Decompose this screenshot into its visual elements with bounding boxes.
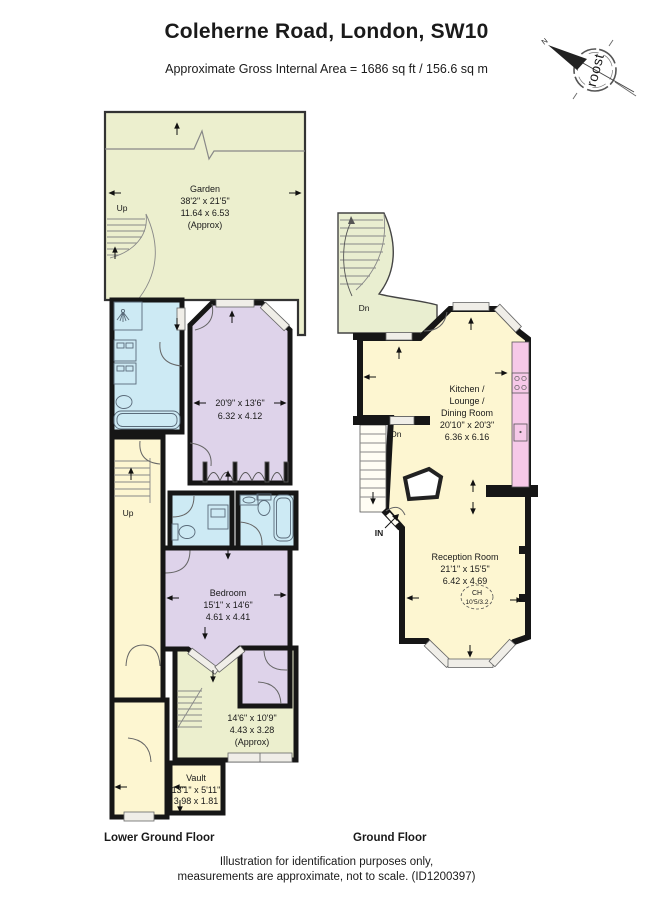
gf-garden-stairs-label: Dn	[359, 303, 370, 313]
ceiling-height-label: CH	[472, 590, 482, 597]
bedroom-dims-ft: 15'1" x 14'6"	[203, 600, 252, 610]
bedroom-name: Bedroom	[210, 588, 247, 598]
compass-needle-icon	[548, 45, 587, 70]
reception-bay-window-center	[448, 659, 493, 668]
compass-brand-label: roost	[583, 52, 607, 89]
kitchen-dims-m: 6.36 x 6.16	[445, 432, 490, 442]
wc-room	[170, 493, 232, 548]
floorplan-drawing: N roost Garden 38'2" x 21'5" 11.64 x 6.5…	[0, 0, 653, 900]
gf-garden-stairs	[338, 213, 437, 333]
vault-name: Vault	[186, 773, 206, 783]
garden-approx: (Approx)	[188, 220, 223, 230]
floorplan-page: Coleherne Road, London, SW10 Approximate…	[0, 0, 653, 900]
lower-ground-floor-plan: Garden 38'2" x 21'5" 11.64 x 6.53 (Appro…	[105, 112, 305, 821]
disclaimer-line-2: measurements are approximate, not to sca…	[0, 871, 653, 883]
ceiling-height-value: 10'5/3.2	[466, 599, 489, 606]
kitchen-counter	[512, 342, 529, 487]
kitchen-top-window	[453, 303, 489, 311]
gf-hall-stairs-label: Dn	[391, 429, 402, 439]
bedroom-dims-m: 4.61 x 4.41	[206, 612, 251, 622]
hallway-stairs-up-label: Up	[123, 508, 134, 518]
stair-landing-window	[390, 417, 414, 425]
compass-rose-icon: N roost	[540, 36, 636, 99]
lower-ground-floor-label: Lower Ground Floor	[104, 832, 215, 844]
hallway-lower-window	[124, 812, 154, 821]
hallway	[112, 437, 163, 700]
garden-dims-m: 11.64 x 6.53	[181, 208, 230, 218]
kitchen-name-1: Kitchen /	[449, 384, 485, 394]
lower-room-dims-ft: 20'9" x 13'6"	[215, 398, 264, 408]
rear-room-dims-m: 4.43 x 3.28	[230, 725, 275, 735]
garden-stairs-up-label: Up	[117, 203, 128, 213]
rear-room-dims-ft: 14'6" x 10'9"	[227, 713, 276, 723]
reception-dims-ft: 21'1" x 15'5"	[440, 564, 489, 574]
reception-name: Reception Room	[431, 552, 498, 562]
lower-reception-room	[190, 303, 290, 483]
kitchen-left-window	[386, 333, 412, 341]
entrance-label: IN	[375, 528, 384, 538]
lower-room-top-window	[216, 300, 254, 308]
lower-room-dims-m: 6.32 x 4.12	[218, 411, 263, 421]
garden-dims-ft: 38'2" x 21'5"	[180, 196, 229, 206]
hallway-lower	[112, 700, 167, 817]
kitchen-dims-ft: 20'10" x 20'3"	[440, 420, 494, 430]
disclaimer-line-1: Illustration for identification purposes…	[0, 856, 653, 868]
rear-room-approx: (Approx)	[235, 737, 270, 747]
ground-floor-label: Ground Floor	[353, 832, 426, 844]
garden-name: Garden	[190, 184, 220, 194]
kitchen-name-3: Dining Room	[441, 408, 493, 418]
ground-floor-plan: Dn	[338, 213, 538, 668]
kitchen-name-2: Lounge /	[449, 396, 485, 406]
reception-dims-m: 6.42 x 4.69	[443, 576, 488, 586]
